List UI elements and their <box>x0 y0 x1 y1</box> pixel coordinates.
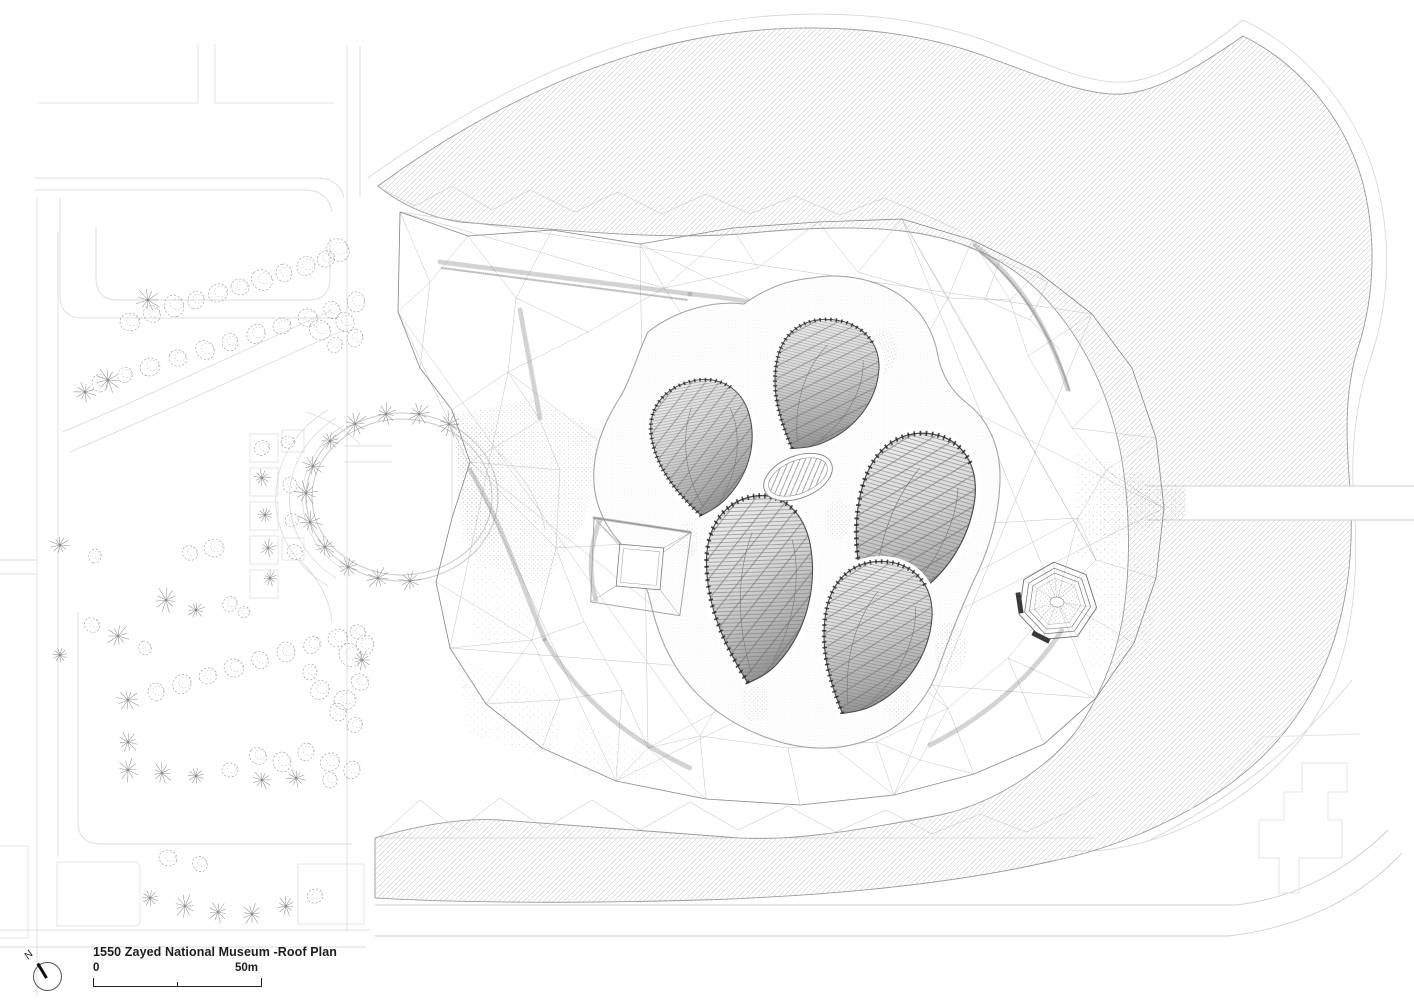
tree-symbol <box>316 323 329 334</box>
block-outline <box>57 862 140 926</box>
palm-symbol <box>50 537 70 553</box>
tree-symbol <box>143 643 151 650</box>
tree-symbol <box>334 242 348 254</box>
tree-symbol <box>283 646 295 656</box>
palm-trunk <box>184 905 186 907</box>
palm-trunk <box>309 521 311 523</box>
tree-symbol <box>169 671 195 697</box>
palm-symbol <box>253 772 271 789</box>
palm-trunk <box>409 580 411 582</box>
palm-frond <box>166 600 169 613</box>
tree-symbol <box>279 320 290 329</box>
building-footprint <box>1259 763 1347 893</box>
tree-symbol <box>332 340 342 348</box>
mesh-line <box>430 236 468 282</box>
site-plan-drawing <box>0 0 1414 1000</box>
tree-symbol <box>335 706 346 715</box>
tree-symbol <box>190 853 211 874</box>
palm-symbol <box>120 732 138 752</box>
mesh-line <box>948 708 974 774</box>
block-outline <box>0 846 28 938</box>
tree-symbol <box>329 304 340 313</box>
palm-trunk <box>127 699 129 701</box>
tree-symbol <box>87 548 102 565</box>
bed <box>250 570 278 598</box>
palm-trunk <box>117 635 119 637</box>
palm-trunk <box>147 299 149 301</box>
palm-symbol <box>346 412 366 436</box>
tree-symbol <box>170 299 183 310</box>
mesh-line <box>648 736 700 748</box>
road <box>0 560 37 574</box>
tree-symbol <box>287 480 297 488</box>
tree-symbol <box>300 633 324 657</box>
tree-symbol <box>301 663 318 682</box>
palm-trunk <box>217 911 219 913</box>
tree-symbol <box>148 683 165 702</box>
palm-symbol <box>136 289 159 311</box>
palm-trunk <box>269 577 271 579</box>
tree-symbol <box>279 756 291 766</box>
bed <box>282 430 304 452</box>
tree-symbol <box>243 321 269 348</box>
mesh-line <box>508 332 588 372</box>
tree-symbol <box>275 263 294 284</box>
palm-symbol <box>142 890 158 906</box>
tree-symbol <box>303 260 315 270</box>
tree-symbol <box>327 756 339 766</box>
palm-trunk <box>418 413 420 415</box>
tree-symbol <box>307 667 317 675</box>
mesh-line <box>788 748 800 805</box>
tree-symbol <box>220 594 240 615</box>
stipple-shadow <box>826 500 850 540</box>
palm-symbol <box>339 558 357 577</box>
tree-symbol <box>306 317 334 344</box>
palm-trunk <box>385 413 387 415</box>
mesh-line <box>1028 356 1072 428</box>
road <box>35 190 332 212</box>
palm-trunk <box>195 775 197 777</box>
road <box>0 930 370 947</box>
palm-trunk <box>361 659 363 661</box>
road <box>35 178 344 198</box>
palm-trunk <box>324 546 326 548</box>
block-outline <box>215 44 334 103</box>
tree-symbol <box>122 370 132 378</box>
palm-symbol <box>156 588 176 614</box>
tree-symbol <box>312 891 322 899</box>
tree-symbol <box>237 281 248 290</box>
tree-symbol <box>247 265 276 294</box>
mesh-line <box>648 748 706 799</box>
tree-symbol <box>140 302 164 325</box>
tree-symbol <box>355 627 365 635</box>
tree-symbol <box>259 443 269 451</box>
tree-symbol <box>193 294 204 303</box>
palm-symbol <box>154 762 171 783</box>
road <box>78 612 352 844</box>
tree-symbol <box>255 750 266 759</box>
tree-symbol <box>352 332 363 341</box>
road <box>300 560 332 622</box>
palm-frond <box>59 537 60 545</box>
tree-symbol <box>277 642 295 663</box>
palm-symbol <box>321 432 338 449</box>
palm-trunk <box>267 547 269 549</box>
palm-trunk <box>149 897 151 899</box>
tree-symbol <box>342 316 354 326</box>
block-outline <box>37 44 198 103</box>
palm-frond <box>299 522 310 523</box>
stipple-sand-west <box>452 398 600 650</box>
stipple-shadow <box>934 622 966 674</box>
palm-frond <box>439 424 449 426</box>
mesh-line <box>948 240 972 298</box>
tree-symbol <box>230 278 249 295</box>
tree-symbol <box>205 280 231 306</box>
tree-symbol <box>346 647 360 659</box>
palm-trunk <box>161 772 163 774</box>
palm-trunk <box>261 477 263 479</box>
tree-symbol <box>253 328 265 338</box>
palm-trunk <box>107 379 109 381</box>
palm-frond <box>60 545 70 546</box>
palm-symbol <box>254 469 271 486</box>
tree-symbol <box>89 620 99 628</box>
mesh-line <box>556 548 584 622</box>
palm-frond <box>261 478 262 486</box>
palm-trunk <box>295 777 297 779</box>
palm-frond <box>218 912 220 923</box>
palm-symbol <box>107 626 129 646</box>
mesh-line <box>584 622 622 690</box>
tree-symbol <box>93 551 101 558</box>
tree-symbol <box>317 684 329 694</box>
tree-symbol <box>127 316 139 326</box>
palm-symbol <box>354 650 370 670</box>
palm-symbol <box>302 456 324 475</box>
palm-trunk <box>59 544 61 546</box>
tree-symbol <box>353 296 365 306</box>
mesh-line <box>1010 300 1028 356</box>
tree-symbol <box>357 676 368 685</box>
palm-symbol <box>264 570 277 586</box>
palm-trunk <box>285 905 287 907</box>
palm-symbol <box>258 508 272 522</box>
tree-symbol <box>203 538 225 558</box>
tree-symbol <box>227 336 238 345</box>
palm-frond <box>128 733 129 742</box>
tree-symbol <box>227 599 237 607</box>
mesh-line <box>664 268 758 288</box>
mesh-line <box>516 230 552 298</box>
tree-symbol <box>248 648 271 672</box>
stipple-patch <box>570 720 660 790</box>
palm-frond <box>285 896 286 906</box>
palm-trunk <box>195 609 197 611</box>
tree-symbol <box>295 741 316 764</box>
stipple-patch <box>455 655 560 760</box>
mesh-line <box>452 372 508 410</box>
mesh-line <box>894 760 920 795</box>
tree-symbol <box>180 543 201 563</box>
palm-symbol <box>299 510 322 533</box>
tree-symbol <box>257 654 268 663</box>
palm-frond <box>108 380 119 381</box>
palm-frond <box>377 569 378 578</box>
tree-symbol <box>236 605 251 620</box>
tree-symbol <box>303 746 314 755</box>
tree-symbol <box>120 313 140 331</box>
tree-symbol <box>344 714 365 735</box>
palm-trunk <box>165 599 167 601</box>
mesh-line <box>400 212 430 282</box>
palm-trunk <box>329 440 331 442</box>
palm-symbol <box>243 903 260 924</box>
tree-symbol <box>231 662 243 672</box>
tree-symbol <box>81 615 102 636</box>
tree-symbol <box>347 291 366 312</box>
tree-symbol <box>290 515 298 522</box>
tree-symbol <box>271 750 293 774</box>
palm-trunk <box>261 779 263 781</box>
east-road-cut <box>1186 486 1414 520</box>
roof-plan-canvas: N 1550 Zayed National Museum -Roof Plan … <box>0 0 1414 1000</box>
palm-trunk <box>354 423 356 425</box>
tree-symbol <box>341 758 363 781</box>
tree-symbol <box>197 859 207 867</box>
palm-frond <box>107 371 108 380</box>
tree-symbol <box>251 438 272 459</box>
tree-symbol <box>227 765 237 773</box>
trees-layer <box>50 234 459 924</box>
oval-arc <box>276 410 328 586</box>
tree-symbol <box>327 775 337 783</box>
palm-symbol <box>261 539 276 558</box>
palm-frond <box>286 778 296 779</box>
tree-symbol <box>202 344 214 354</box>
mesh-line <box>664 228 732 288</box>
mesh-line <box>732 228 758 268</box>
palm-frond <box>262 477 271 478</box>
tree-symbol <box>335 632 347 642</box>
tree-symbol <box>197 666 219 687</box>
tree-symbol <box>165 852 176 861</box>
mesh-line <box>588 288 664 332</box>
tree-symbol <box>281 267 292 276</box>
palm-symbol <box>209 902 225 923</box>
tree-symbol <box>215 287 227 297</box>
palm-symbol <box>53 648 67 662</box>
mesh-line <box>876 742 894 795</box>
palm-frond <box>128 699 138 700</box>
palm-trunk <box>127 741 129 743</box>
tree-symbol <box>352 720 362 728</box>
tree-symbol <box>346 328 364 348</box>
bed <box>250 536 278 564</box>
tree-symbol <box>115 365 135 386</box>
walkway <box>442 268 688 300</box>
mesh-line <box>700 736 706 799</box>
tree-symbol <box>222 763 238 777</box>
tree-symbol <box>327 700 349 723</box>
palm-symbol <box>116 692 139 710</box>
tree-symbol <box>314 248 337 270</box>
tree-symbol <box>322 771 339 789</box>
tree-symbol <box>341 693 354 704</box>
palm-trunk <box>347 566 349 568</box>
tree-symbol <box>305 887 325 906</box>
palm-symbol <box>188 768 204 784</box>
tree-symbol <box>175 352 186 361</box>
tree-symbol <box>222 657 246 680</box>
tree-symbol <box>349 764 360 773</box>
tree-symbol <box>294 253 319 279</box>
tree-symbol <box>147 361 159 371</box>
palm-frond <box>210 912 218 913</box>
palm-trunk <box>377 577 379 579</box>
tree-symbol <box>326 627 350 649</box>
tree-symbol <box>167 348 188 368</box>
tree-symbol <box>192 337 218 364</box>
palm-symbol <box>286 770 307 788</box>
tree-symbol <box>309 639 320 648</box>
tree-symbol <box>153 686 164 695</box>
road <box>344 446 392 462</box>
tree-symbol <box>335 639 365 670</box>
tree-symbol <box>355 634 375 656</box>
tree-symbol <box>307 677 334 704</box>
mesh-line <box>516 298 588 332</box>
tree-symbol <box>205 670 216 679</box>
mesh-line <box>508 298 516 372</box>
tree-symbol <box>179 678 191 688</box>
tree-symbol <box>362 639 374 649</box>
tree-symbol <box>246 744 270 768</box>
bed <box>250 502 278 530</box>
tree-symbol <box>187 548 197 556</box>
tree-symbol <box>162 293 187 319</box>
tree-symbol <box>242 608 249 614</box>
tree-symbol <box>137 355 162 379</box>
mesh-line <box>948 298 1010 300</box>
mesh-line <box>818 222 858 272</box>
palm-symbol <box>119 758 138 782</box>
palm-symbol <box>96 369 119 393</box>
palm-symbol <box>294 480 319 504</box>
tree-symbol <box>258 273 271 284</box>
palm-trunk <box>84 391 86 393</box>
palm-trunk <box>251 913 253 915</box>
tree-symbol <box>292 547 302 555</box>
palm-trunk <box>264 514 266 516</box>
palm-trunk <box>305 492 307 494</box>
tree-symbol <box>149 308 160 317</box>
road <box>96 228 330 300</box>
palm-symbol <box>278 896 293 915</box>
mesh-line <box>876 742 920 760</box>
palm-trunk <box>59 654 61 656</box>
mesh-line <box>920 708 948 760</box>
tree-symbol <box>333 309 358 335</box>
palm-trunk <box>127 769 129 771</box>
mesh-line <box>1008 658 1044 744</box>
palm-frond <box>218 903 219 912</box>
palm-frond <box>127 700 128 709</box>
palm-trunk <box>312 465 314 467</box>
tree-symbol <box>348 671 371 693</box>
tree-symbol <box>222 333 238 351</box>
mesh-line <box>920 760 974 774</box>
tree-symbol <box>211 542 223 552</box>
palm-symbol <box>74 382 96 402</box>
palm-symbol <box>188 604 205 618</box>
road <box>62 310 332 432</box>
palm-frond <box>310 510 311 522</box>
palm-symbol <box>176 895 194 918</box>
mesh-line <box>398 282 430 312</box>
tree-symbol <box>317 749 343 774</box>
tree-symbol <box>322 234 354 266</box>
road <box>70 330 344 452</box>
